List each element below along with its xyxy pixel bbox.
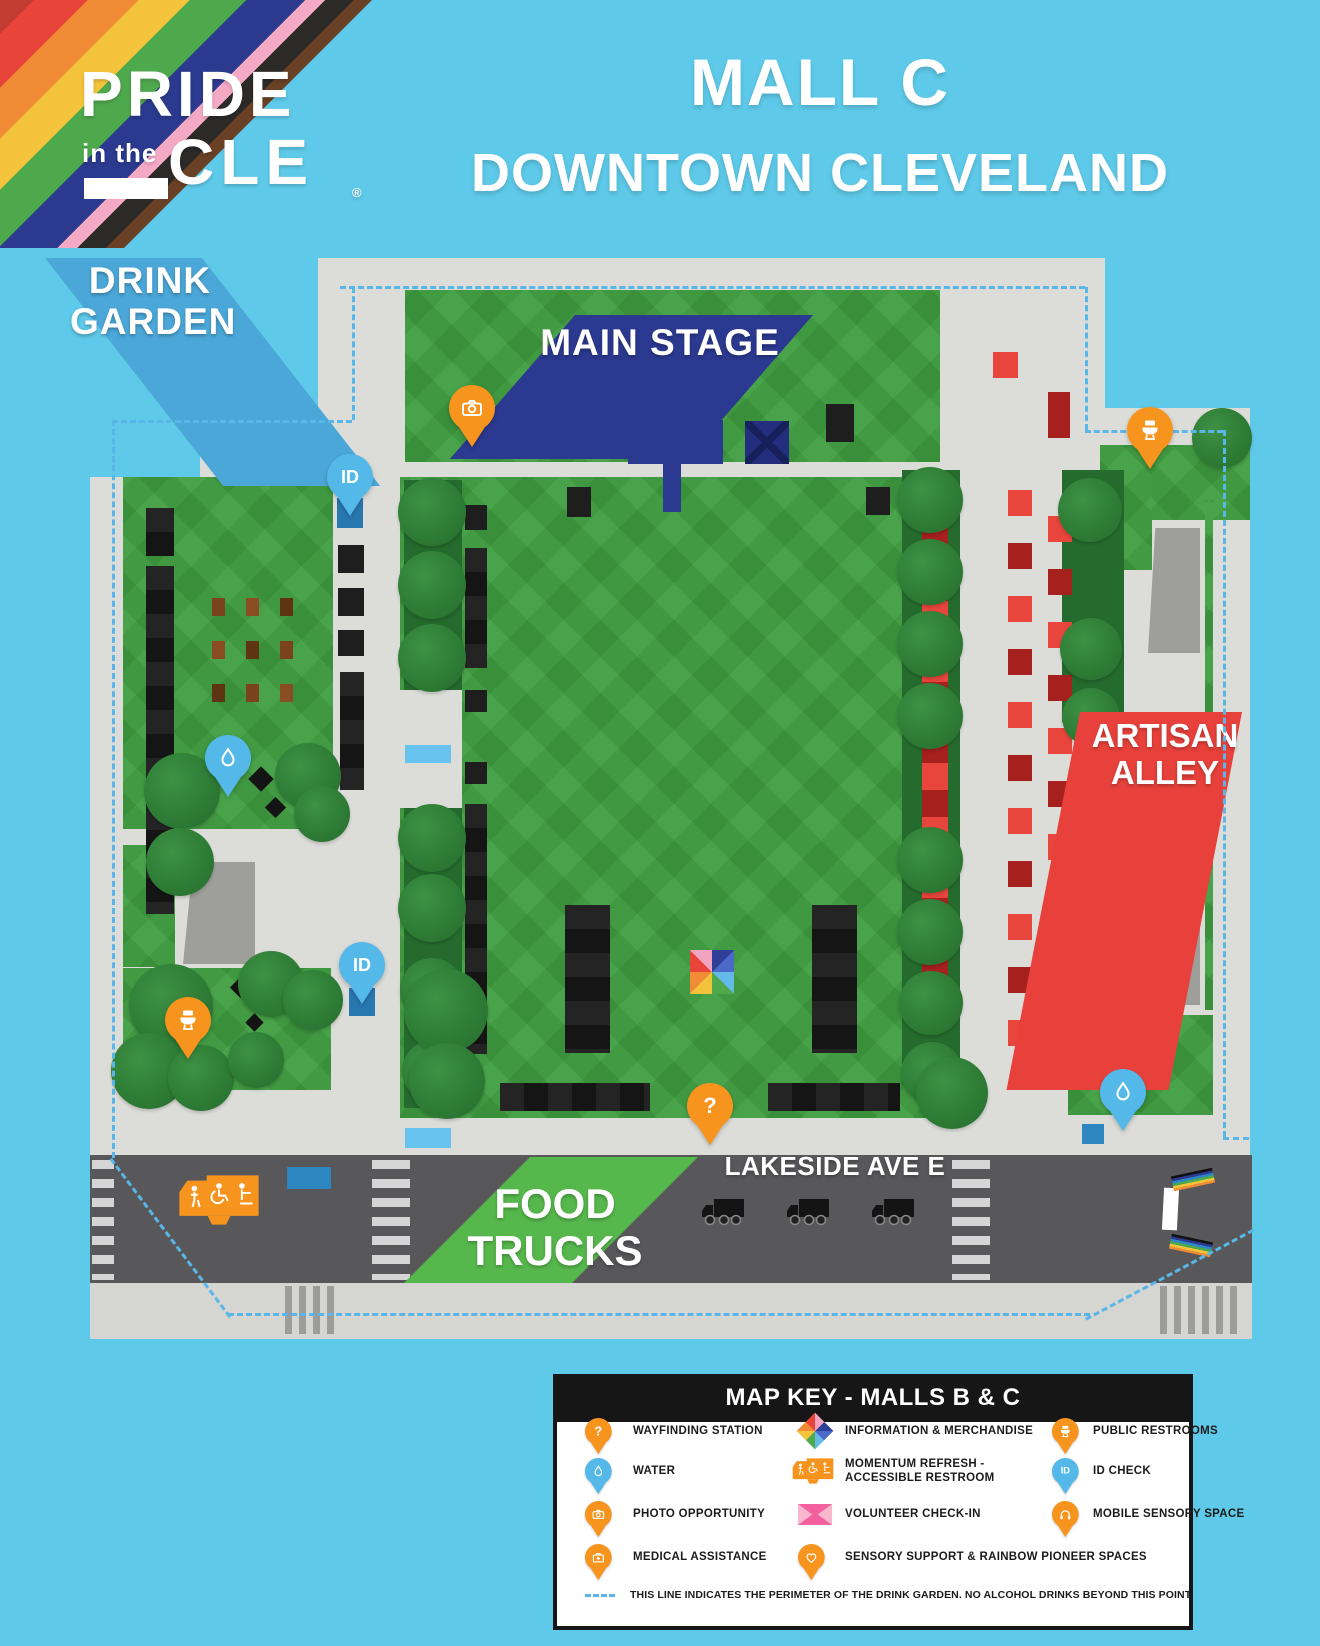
tree (283, 970, 343, 1030)
vendor-row-black (565, 905, 610, 1053)
food-truck-icon (785, 1195, 831, 1227)
title-mall-c: MALL C (320, 44, 1320, 120)
key-label-photo: PHOTO OPPORTUNITY (633, 1508, 765, 1520)
perimeter-dash (228, 1313, 1090, 1316)
booth-black (338, 588, 364, 616)
booth-black (146, 508, 174, 556)
picnic-table (212, 684, 225, 702)
volunteer-bow-icon (798, 1504, 832, 1525)
perimeter-dash (352, 287, 355, 420)
booth-black (567, 487, 591, 517)
mobile-sensory-pin-icon (1052, 1501, 1079, 1539)
picnic-table (280, 598, 293, 616)
tree (398, 478, 466, 546)
photo-pin-icon (585, 1501, 612, 1539)
food-truck-icon (870, 1195, 916, 1227)
stage-tent (745, 421, 789, 464)
key-label-medical: MEDICAL ASSISTANCE (633, 1551, 767, 1563)
tree (398, 624, 466, 692)
wayfinding-pin-label: ? (687, 1083, 733, 1129)
booth-blue (405, 1128, 451, 1148)
logo-word-pride: PRIDE (80, 62, 296, 126)
artisan-booth-column-red (1008, 490, 1032, 1046)
wayfinding-pin: ? (687, 1083, 733, 1149)
tree (897, 539, 963, 605)
crosswalk (1160, 1286, 1240, 1334)
tree (897, 899, 963, 965)
tree (294, 786, 350, 842)
booth-black (465, 505, 487, 530)
crosswalk (92, 1160, 114, 1280)
main-stage-label: MAIN STAGE (495, 322, 825, 363)
id-check-pin: ID (339, 942, 385, 1008)
medical-pin-icon (585, 1544, 612, 1582)
logo-word-in-the: in the (82, 140, 157, 166)
momentum-line2: ACCESSIBLE RESTROOM (845, 1471, 994, 1485)
tree (1060, 618, 1122, 680)
key-label-water: WATER (633, 1465, 675, 1477)
key-label-sensory: SENSORY SUPPORT & RAINBOW PIONEER SPACES (845, 1551, 1147, 1563)
perimeter-dash (1223, 430, 1226, 1137)
food-trucks-label: FOOD TRUCKS (430, 1180, 680, 1274)
tree (146, 828, 214, 896)
drink-garden-line2: GARDEN (70, 301, 230, 342)
perimeter-dash (340, 286, 1085, 289)
picnic-table (246, 641, 259, 659)
crosswalk (372, 1160, 410, 1280)
perimeter-dash (112, 420, 115, 1158)
drink-garden-line1: DRINK (70, 260, 230, 301)
public-restroom-pin (1127, 407, 1173, 473)
key-label-id-check: ID CHECK (1093, 1465, 1151, 1477)
key-label-wayfinding: WAYFINDING STATION (633, 1425, 763, 1437)
public-restroom-pin (165, 997, 211, 1063)
sensory-heart-pin-icon (798, 1544, 825, 1582)
food-truck-icon (700, 1195, 746, 1227)
title-downtown-cleveland: DOWNTOWN CLEVELAND (320, 142, 1320, 204)
artisan-alley-line1: ARTISAN (1090, 718, 1240, 755)
picnic-table (212, 598, 225, 616)
crosswalk (285, 1286, 337, 1334)
tree (897, 827, 963, 893)
restroom-pin-icon (1052, 1418, 1079, 1456)
key-note: THIS LINE INDICATES THE PERIMETER OF THE… (630, 1589, 1193, 1601)
key-label-volunteer: VOLUNTEER CHECK-IN (845, 1508, 981, 1520)
perimeter-dash-sample (585, 1594, 615, 1597)
artisan-alley-label: ARTISAN ALLEY (1090, 718, 1240, 792)
id-glyph: ID (1052, 1458, 1079, 1485)
picnic-table (212, 641, 225, 659)
tree (1192, 408, 1252, 468)
artisan-alley-line2: ALLEY (1090, 755, 1240, 792)
building (1148, 528, 1200, 653)
tree (404, 969, 488, 1053)
picnic-table (246, 684, 259, 702)
booth-row-black (465, 548, 487, 668)
tree (409, 1043, 485, 1119)
momentum-refresh-truck-icon (790, 1457, 836, 1485)
vendor-row-black (768, 1083, 900, 1111)
tree (897, 683, 963, 749)
tree (897, 611, 963, 677)
tree (398, 804, 466, 872)
momentum-line1: MOMENTUM REFRESH - (845, 1457, 994, 1471)
information-pinwheel-icon (690, 950, 734, 994)
drink-garden-label: DRINK GARDEN (70, 260, 230, 343)
tree (398, 874, 466, 942)
picnic-table (280, 641, 293, 659)
booth-black (338, 630, 364, 656)
tree (916, 1057, 988, 1129)
wayfinding-pin-icon: ? (585, 1418, 612, 1456)
perimeter-dash (1085, 287, 1088, 430)
picnic-table (280, 684, 293, 702)
food-trucks-line2: TRUCKS (430, 1227, 680, 1274)
picnic-table (246, 598, 259, 616)
booth-blue (287, 1167, 331, 1189)
booth-black (338, 545, 364, 573)
wayfinding-glyph: ? (585, 1418, 612, 1445)
id-pin-icon: ID (1052, 1458, 1079, 1496)
momentum-refresh-truck-icon (175, 1172, 263, 1228)
stage-ramp (663, 464, 681, 512)
water-pin-icon (585, 1458, 612, 1496)
street-name-label: LAKESIDE AVE E (700, 1152, 970, 1181)
tree (398, 551, 466, 619)
event-map-poster: PRIDE in the CLE ® MALL C DOWNTOWN CLEVE… (0, 0, 1320, 1646)
tree (899, 971, 963, 1035)
page-title: MALL C DOWNTOWN CLEVELAND (320, 44, 1320, 204)
south-sidewalk (90, 1283, 1252, 1339)
tree (228, 1032, 284, 1088)
booth-row-black (340, 672, 364, 790)
perimeter-dash (112, 420, 352, 423)
water-pin (1100, 1069, 1146, 1135)
id-pin-label: ID (339, 942, 385, 988)
booth-red (993, 352, 1018, 378)
key-label-information: INFORMATION & MERCHANDISE (845, 1425, 1033, 1437)
rainbow-c-bar (1162, 1188, 1179, 1231)
vendor-row-black (812, 905, 857, 1053)
key-label-mobile-sensory: MOBILE SENSORY SPACE (1093, 1508, 1244, 1520)
photo-opportunity-pin (449, 385, 495, 451)
water-pin (205, 735, 251, 801)
booth-blue (1082, 1124, 1104, 1144)
vendor-row-black (500, 1083, 650, 1111)
booth-black (465, 762, 487, 784)
logo-word-cle: CLE (168, 130, 314, 194)
key-label-momentum: MOMENTUM REFRESH - ACCESSIBLE RESTROOM (845, 1457, 994, 1486)
id-check-pin: ID (327, 454, 373, 520)
stage-tower (826, 404, 854, 442)
perimeter-dash (1223, 1137, 1249, 1140)
key-label-restrooms: PUBLIC RESTROOMS (1093, 1425, 1218, 1437)
booth-black (465, 690, 487, 712)
map-key-title: MAP KEY - MALLS B & C (553, 1374, 1193, 1422)
logo-underline-bar (84, 178, 168, 199)
food-trucks-line1: FOOD (430, 1180, 680, 1227)
booth-black (866, 487, 890, 515)
booth-blue (405, 745, 451, 763)
tree (1058, 478, 1122, 542)
booth-red (1048, 392, 1070, 438)
id-pin-label: ID (327, 454, 373, 500)
tree (897, 467, 963, 533)
